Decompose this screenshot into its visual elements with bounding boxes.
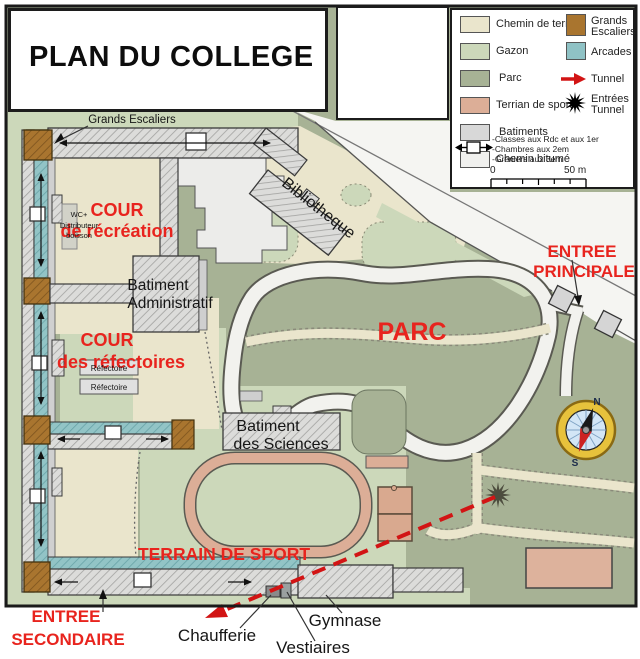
legend-note-1: -Classes aux Rdc et aux 1er <box>492 134 599 144</box>
label-cour-recreation-1: COUR <box>91 200 144 220</box>
legend-swatch-batiments <box>460 124 490 141</box>
label-entree-principale-1: ENTREE <box>548 242 617 261</box>
legend-note-2: -Chambres aux 2em <box>492 144 599 154</box>
label-sciences-1: Batiment <box>236 418 300 435</box>
legend-label-arcades: Arcades <box>591 47 631 58</box>
label-sciences-2: des Sciences <box>233 436 328 453</box>
compass-north-label: N <box>593 397 600 408</box>
legend-swatch-chemin-terre <box>460 16 490 33</box>
label-entree-secondaire-2: SECONDAIRE <box>11 630 124 649</box>
door-symbol-icon <box>455 140 493 155</box>
legend-label-parc: Parc <box>499 73 522 84</box>
scale-bar <box>489 177 591 191</box>
label-wc-1: WC+ <box>71 210 88 219</box>
legend-swatch-parc <box>460 70 490 87</box>
legend-label-gazon: Gazon <box>496 46 528 57</box>
label-entree-secondaire-1: ENTREE <box>32 607 101 626</box>
scale-end-label: 50 m <box>564 165 586 176</box>
label-gymnase: Gymnase <box>309 611 382 630</box>
legend-swatch-escaliers <box>566 14 586 36</box>
legend-label-tunnel: Tunnel <box>591 74 624 85</box>
legend-swatch-arcades <box>566 42 586 60</box>
blank-box <box>336 6 449 120</box>
label-wc-2: Distributeur <box>60 221 99 230</box>
scale-start-label: 0 <box>490 165 496 176</box>
label-parc: PARC <box>378 318 447 346</box>
tunnel-arrow-icon <box>560 72 587 86</box>
legend-label-entrees-tunnel: Entrées Tunnel <box>591 94 640 116</box>
legend: Chemin de terre Gazon Parc Terrian de sp… <box>450 8 635 189</box>
label-refectoire-1: Réfectoire <box>91 364 128 373</box>
label-admin-1: Batiment <box>127 277 189 294</box>
label-chaufferie: Chaufferie <box>178 626 256 645</box>
page-title: PLAN DU COLLEGE <box>29 41 325 74</box>
label-wc-3: boisson <box>66 231 92 240</box>
legend-swatch-gazon <box>460 43 490 60</box>
legend-label-chemin-terre: Chemin de terre <box>496 19 575 30</box>
legend-label-sport: Terrian de sport <box>496 100 572 111</box>
label-refectoire-2: Réfectoire <box>91 383 128 392</box>
legend-label-escaliers: Grands Escaliers <box>591 16 637 38</box>
legend-swatch-sport <box>460 97 490 114</box>
label-terrain-sport: TERRAIN DE SPORT <box>138 544 310 564</box>
legend-note-3: -Greniers aux 3em <box>492 154 599 164</box>
label-entree-principale-2: PRINCIPALE <box>533 262 635 281</box>
legend-notes: -Classes aux Rdc et aux 1er -Chambres au… <box>492 134 599 164</box>
compass-south-label: S <box>572 458 579 469</box>
title-box: PLAN DU COLLEGE <box>8 8 328 112</box>
label-admin-2: Administratif <box>127 295 213 312</box>
college-map-page: N S Grands Escaliers COUR de récréation … <box>0 0 640 659</box>
shrub-patch <box>352 390 406 454</box>
label-cour-refectoires-1: COUR <box>81 330 134 350</box>
label-grands-escaliers: Grands Escaliers <box>88 114 176 126</box>
tunnel-entrance-star-icon <box>564 92 586 114</box>
label-vestiaires: Vestiaires <box>276 638 350 657</box>
